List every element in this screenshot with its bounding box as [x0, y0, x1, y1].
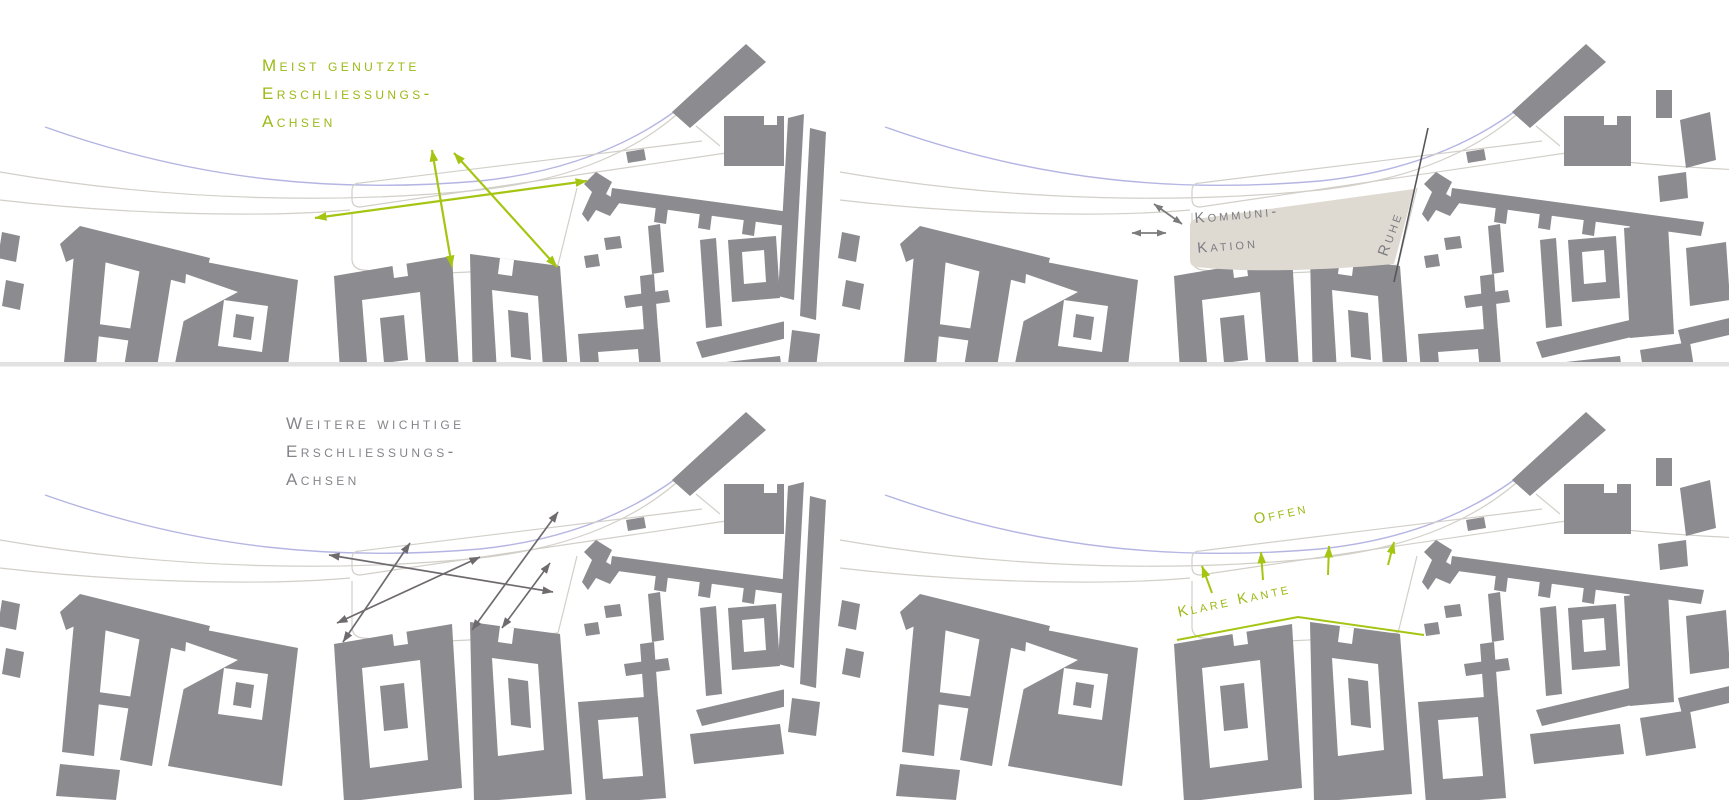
label-line: Achsen: [262, 108, 433, 136]
label-line: Meist genutzte: [262, 52, 433, 80]
row-divider: [0, 362, 1729, 367]
site-plan-diagrams: [0, 0, 1729, 800]
label-secondary-access-axes: Weitere wichtige Erschliessungs- Achsen: [286, 410, 465, 494]
label-main-access-axes: Meist genutzte Erschliessungs- Achsen: [262, 52, 433, 136]
site-plan-top-left: [0, 44, 902, 436]
primary-access-axes-arrows: [315, 150, 587, 267]
label-line: Erschliessungs-: [262, 80, 433, 108]
label-line: Weitere wichtige: [286, 410, 465, 438]
concept-diagram-sheet: Meist genutzte Erschliessungs- Achsen Ko…: [0, 0, 1729, 800]
label-line: Achsen: [286, 466, 465, 494]
label-kommunikation: Kommuni- Kation: [1193, 197, 1283, 264]
exchange-arrows: [1132, 204, 1182, 233]
label-line: Erschliessungs-: [286, 438, 465, 466]
